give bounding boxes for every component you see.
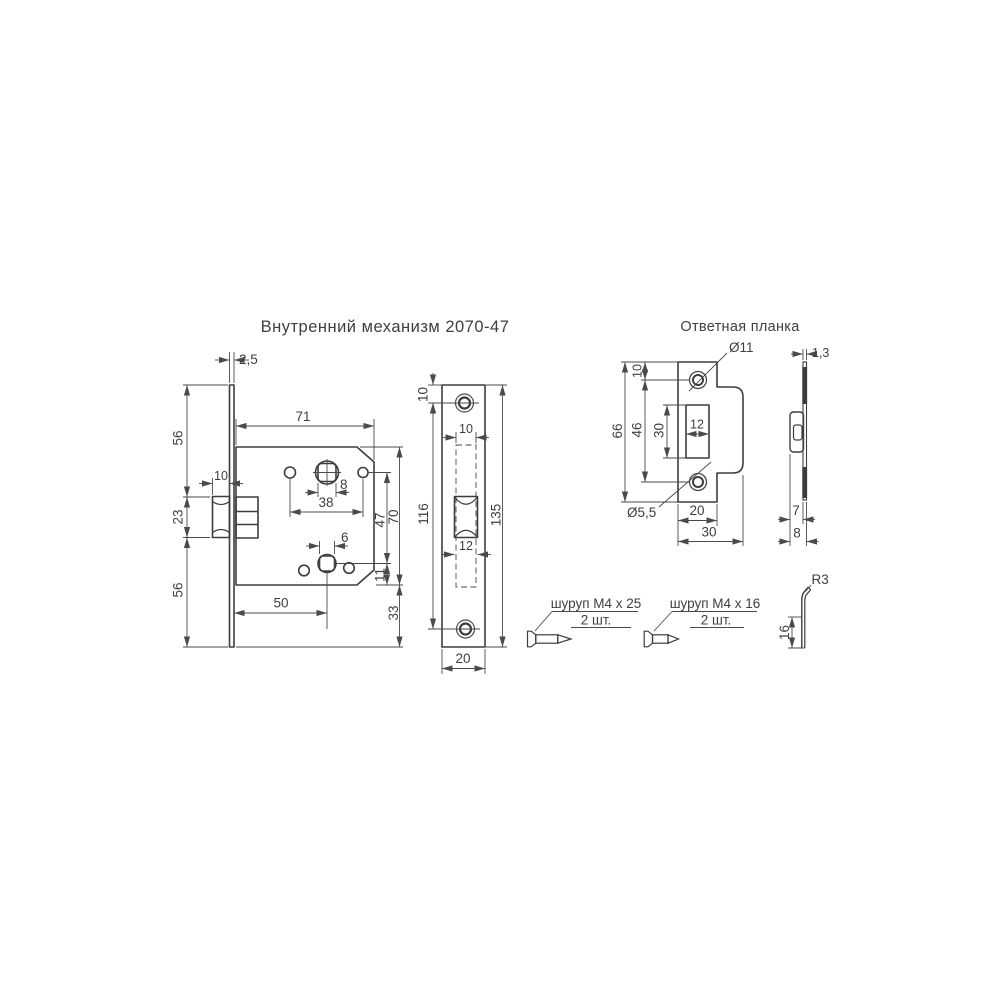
rivet-hole [285,467,296,478]
dim-strike-slot-width: 12 [690,418,704,432]
screw-head [528,631,536,647]
screw-m4x16: шуруп М4 х 16 2 шт. [644,596,760,647]
strike-tab-detail [794,425,803,440]
strike-plate-front-view: Ø11 Ø5,5 66 10 46 30 12 20 30 [610,340,754,546]
dim-strike-screw-spacing: 46 [630,422,645,437]
screw-label-m4x16: шуруп М4 х 16 [670,596,761,611]
dim-screw-hole-diameter: Ø5,5 [627,505,656,520]
lock-technical-drawing: Внутренний механизм 2070-47 Ответная пла… [0,0,1000,1000]
dim-slot-width: 10 [459,422,473,436]
dim-spindle-square: 8 [340,477,348,492]
mechanism-side-view: 2,5 56 23 56 10 71 8 38 [171,352,404,647]
dim-bottom-height: 56 [171,582,186,597]
screw-qty-m4x16: 2 шт. [701,613,732,628]
hidden-slot [456,445,476,587]
strike-plate-outline [678,362,743,502]
dim-strike-height: 66 [610,423,625,438]
rivet-hole [358,468,368,478]
dim-lower-square: 6 [341,530,349,545]
dim-total-depth: 8 [793,526,801,541]
dim-faceplate-thickness: 2,5 [239,352,258,367]
dim-tab-depth: 7 [792,503,800,518]
dim-top-height: 56 [171,430,186,445]
dim-plate-width: 20 [455,651,470,666]
screw-m4x25: шуруп М4 х 25 2 шт. [528,596,642,647]
dim-hole-spacing: 38 [318,495,333,510]
dim-countersink-diameter: Ø11 [729,340,754,355]
latch-tail [236,497,258,538]
dim-latch-height: 23 [171,509,186,524]
dim-backset: 50 [273,596,288,611]
strike-latch-slot [686,405,709,458]
mechanism-title: Внутренний механизм 2070-47 [261,318,510,336]
dim-strike-slot-height: 30 [652,423,667,438]
screw-body [536,635,558,643]
screw-label-m4x25: шуруп М4 х 25 [551,596,642,611]
technical-drawing-page: Внутренний механизм 2070-47 Ответная пла… [0,0,1000,1000]
dim-lower-offset: 11 [373,568,388,582]
screw-head [644,631,652,647]
dim-body-height: 70 [386,509,401,524]
screw-qty-m4x25: 2 шт. [581,613,612,628]
strike-plate-title: Ответная планка [680,319,800,335]
latch-front [455,497,478,538]
screw-tip [668,635,679,643]
dim-strike-main-width: 20 [689,503,704,518]
strike-plate-side-view: 1,3 7 8 [778,346,829,546]
dim-below-body: 33 [386,605,401,620]
screw-body [653,635,669,643]
dim-body-width: 71 [295,409,310,424]
dim-latch-width: 10 [214,469,228,483]
dim-lip-height: 16 [777,625,792,640]
dim-plate-height: 135 [489,504,504,527]
rivet-hole [344,563,355,574]
dim-strike-top-offset: 10 [631,364,645,378]
dim-screw-top-offset: 10 [416,387,431,402]
dim-strike-thickness: 1,3 [812,346,829,360]
dim-bend-radius: R3 [812,572,829,587]
lower-square-hole [320,556,335,571]
dim-strike-total-width: 30 [701,525,716,540]
rivet-hole [299,565,310,576]
screw-tip [558,635,571,643]
dim-latch-slot-width: 12 [459,539,473,553]
dim-screw-spacing: 116 [416,503,431,525]
faceplate-front-view: 10 116 135 10 12 20 [416,373,508,674]
bend-radius-detail: 16 R3 [777,572,829,648]
